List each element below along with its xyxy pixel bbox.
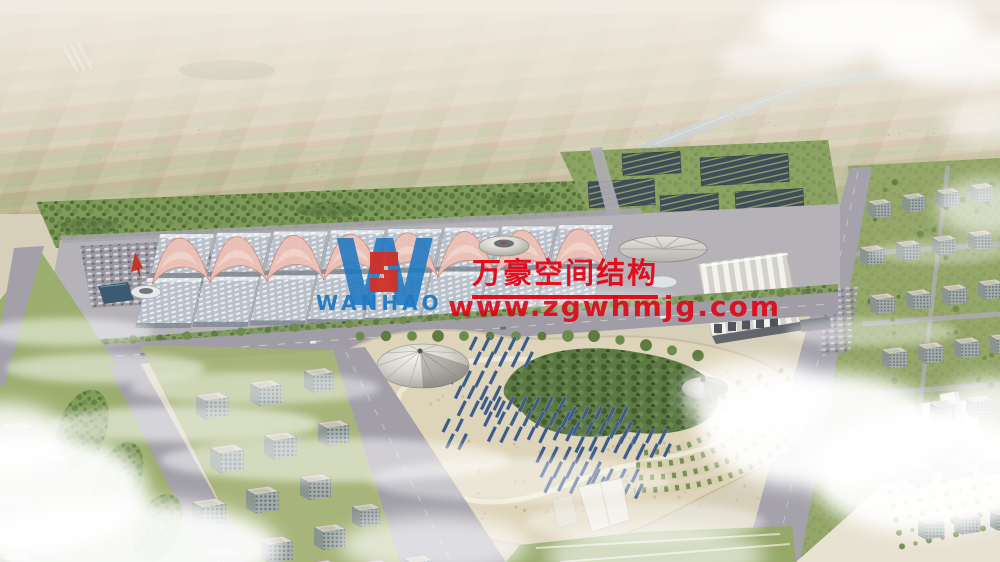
gravel [467, 439, 470, 442]
park-edge-tree [355, 331, 364, 340]
entrance-pavilion [647, 276, 677, 288]
gravel [516, 447, 518, 449]
street-tree [481, 311, 487, 317]
park-edge-tree [615, 335, 624, 344]
gravel [735, 499, 738, 502]
street-tree [157, 335, 163, 341]
dome-hall [479, 236, 529, 256]
cloud-wisp [498, 288, 678, 312]
tree [953, 306, 960, 313]
gravel [743, 485, 746, 488]
building [902, 193, 925, 213]
gravel [484, 512, 486, 514]
gravel [442, 395, 444, 397]
building [882, 347, 907, 368]
street-tree [507, 308, 515, 316]
tree [989, 352, 994, 357]
tree [931, 227, 936, 232]
street-tree [211, 331, 217, 337]
park-edge-tree [588, 330, 600, 342]
cloud-wisp [5, 353, 205, 383]
round-pavilion [131, 286, 161, 299]
street-tree [427, 315, 433, 321]
cloud-wisp [50, 406, 320, 442]
aerial-rendering-image: W WANHAO 万豪空间结构 www.zgwhmjg.com [0, 0, 1000, 562]
gravel [653, 495, 656, 498]
gravel [523, 509, 526, 512]
building [870, 293, 895, 314]
gravel [429, 402, 432, 405]
park-edge-tree [538, 332, 547, 341]
tree [896, 295, 900, 299]
gravel [612, 445, 615, 448]
tree [917, 231, 924, 238]
cloud-wisp [787, 318, 957, 346]
street-tree [237, 328, 245, 336]
building [906, 289, 931, 310]
park-edge-tree [381, 331, 391, 341]
gravel [629, 437, 631, 439]
gravel [607, 448, 610, 451]
street-tree [373, 319, 379, 325]
cloud [683, 358, 833, 434]
street-tree [805, 288, 811, 294]
plaza-tree [913, 541, 917, 545]
gravel [513, 442, 516, 445]
exhibition-hall [306, 274, 373, 324]
gravel [678, 495, 681, 498]
street-tree [751, 292, 757, 298]
park-edge-tree [562, 330, 574, 342]
street-tree [291, 324, 299, 332]
building [246, 486, 279, 513]
building [868, 199, 891, 219]
street-tree [777, 289, 785, 297]
oval-hall [619, 236, 707, 262]
street-tree [345, 320, 353, 328]
street-tree [723, 293, 731, 301]
park-edge-tree [640, 339, 652, 351]
building [978, 279, 1000, 300]
gravel [437, 399, 440, 402]
gravel [757, 497, 760, 500]
building [942, 284, 967, 305]
car [310, 341, 316, 344]
solar-array [622, 151, 681, 176]
street-tree [183, 331, 191, 339]
park-edge-tree [432, 330, 444, 342]
car [770, 308, 776, 311]
park-edge-tree [407, 331, 417, 341]
gravel [684, 492, 687, 495]
scene-svg [0, 0, 1000, 562]
street-tree [453, 312, 461, 320]
park-edge-tree [692, 350, 703, 361]
exhibition-hall [363, 273, 430, 323]
building [918, 342, 943, 363]
plaza-tree [980, 525, 986, 531]
plaza-tree [899, 543, 905, 549]
solar-array [700, 153, 789, 186]
gravel [461, 395, 464, 398]
street-tree [697, 296, 703, 302]
tree [892, 179, 898, 185]
car [660, 316, 666, 319]
cloud [718, 38, 858, 78]
solar-array [588, 179, 655, 208]
exhibition-hall [249, 275, 316, 325]
street-tree [265, 327, 271, 333]
gravel [514, 505, 517, 508]
park-edge-tree [459, 331, 469, 341]
park-edge-tree [667, 345, 677, 355]
building [954, 337, 979, 358]
cone-tent [377, 344, 469, 388]
tree [982, 356, 986, 360]
tree [883, 188, 888, 193]
street-tree [399, 316, 407, 324]
exhibition-hall [192, 277, 259, 327]
car [500, 327, 506, 330]
street-tree [319, 323, 325, 329]
gravel [663, 441, 666, 444]
cloud-wisp [370, 458, 670, 502]
